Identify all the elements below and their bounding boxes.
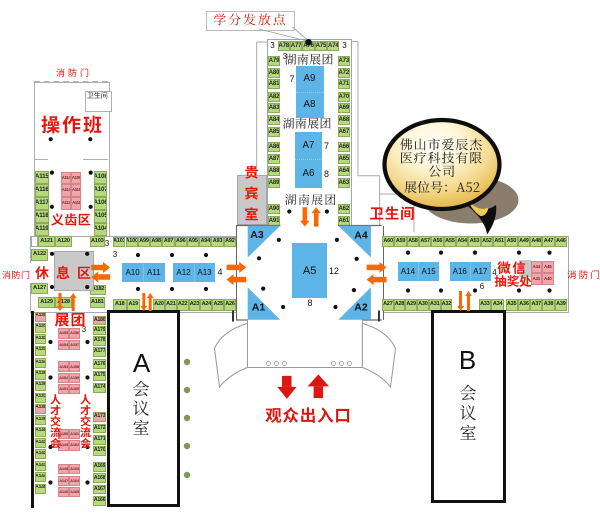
svg-text:A3: A3 [250, 229, 264, 241]
svg-text:A2: A2 [354, 301, 368, 313]
svg-text:A4: A4 [354, 230, 368, 242]
svg-text:A1: A1 [252, 301, 266, 313]
